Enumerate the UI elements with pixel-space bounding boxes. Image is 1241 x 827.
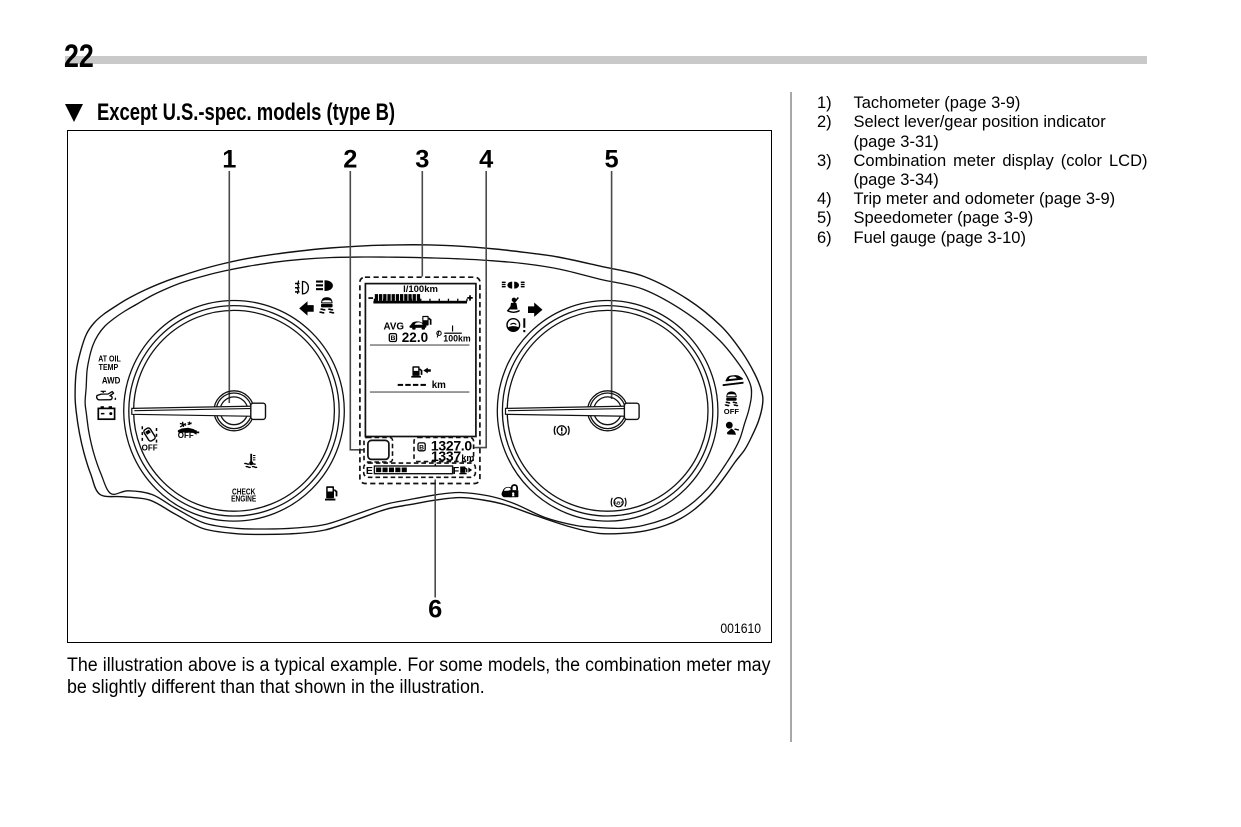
svg-text:5: 5 bbox=[605, 145, 619, 173]
svg-text:B: B bbox=[419, 445, 424, 452]
svg-text:TEMP: TEMP bbox=[99, 362, 119, 372]
svg-text:001610: 001610 bbox=[720, 621, 761, 636]
svg-text:B: B bbox=[390, 335, 395, 342]
svg-text:3: 3 bbox=[415, 145, 429, 173]
svg-text:km: km bbox=[432, 380, 446, 391]
svg-text:22.0: 22.0 bbox=[402, 330, 428, 345]
svg-text:1337: 1337 bbox=[431, 448, 461, 464]
svg-text:2: 2 bbox=[343, 145, 357, 173]
svg-text:OFF: OFF bbox=[724, 407, 740, 416]
svg-text:AWD: AWD bbox=[102, 375, 120, 386]
svg-text:ABS: ABS bbox=[614, 500, 624, 505]
svg-text:ENGINE: ENGINE bbox=[231, 494, 256, 504]
svg-text:E: E bbox=[366, 465, 373, 477]
svg-text:4: 4 bbox=[479, 145, 493, 173]
svg-text:l: l bbox=[451, 324, 453, 334]
svg-text:F: F bbox=[453, 465, 460, 477]
svg-text:1: 1 bbox=[222, 145, 236, 173]
svg-text:OFF: OFF bbox=[178, 431, 194, 440]
svg-text:km: km bbox=[461, 453, 474, 463]
svg-text:6: 6 bbox=[428, 596, 442, 624]
svg-text:OFF: OFF bbox=[142, 443, 158, 452]
svg-text:100km: 100km bbox=[443, 334, 471, 344]
svg-text:l/100km: l/100km bbox=[403, 284, 438, 295]
